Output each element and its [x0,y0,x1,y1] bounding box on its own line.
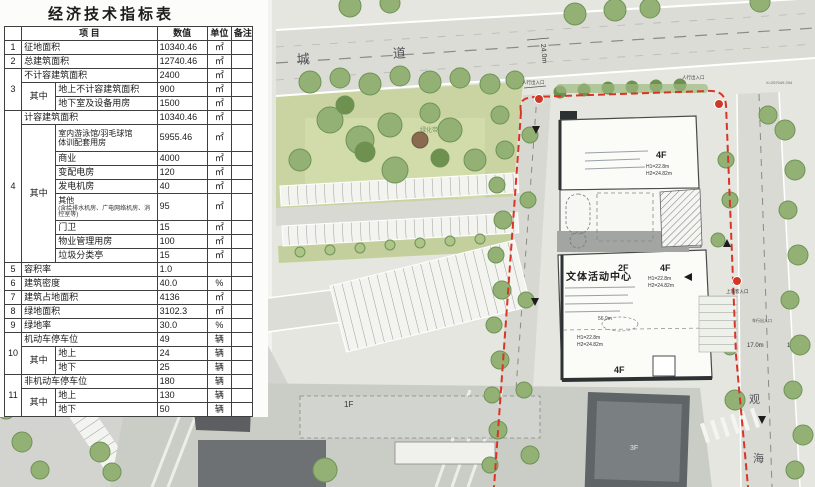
floor-label-1f: 1F [344,400,353,409]
building-name-label: 文体活动中心 [566,270,632,283]
cell-label: 垃圾分类亭 [56,249,157,263]
cell-header-value: 数值 [157,27,207,41]
cell-remark [231,166,252,180]
cell-label: 绿地面积 [22,305,158,319]
cell-unit: ㎡ [207,97,231,111]
cell-label: 建筑占地面积 [22,291,158,305]
cell-label: 其他 (含给排水机房、广电网络机房、消控室等) [56,194,157,221]
cell-value: 100 [157,235,207,249]
cell-no: 6 [5,277,22,291]
cell-unit: ㎡ [207,55,231,69]
cell-value: 4000 [157,152,207,166]
indicator-sheet: 经济技术指标表 项 目 数值 单位 备注 1 征地面积 10340.46 ㎡ 2… [0,0,268,417]
cell-unit: 辆 [207,375,231,389]
cell-remark [231,97,252,111]
cell-unit: ㎡ [207,125,231,152]
cell-unit: ㎡ [207,152,231,166]
cell-value: 900 [157,83,207,97]
cell-remark [231,403,252,417]
cell-unit: ㎡ [207,111,231,125]
cell-label: 不计容建筑面积 [22,69,158,83]
dim-17m-label: 17.0m [747,343,764,349]
cell-unit: ㎡ [207,41,231,55]
cell-label-note: (含给排水机房、广电网络机房、消控室等) [58,206,154,218]
cell-label: 地下室及设备用房 [56,97,157,111]
ped-entrance-label-1: 人行出入口 [522,79,545,86]
cell-label: 地上不计容建筑面积 [56,83,157,97]
cell-unit: 辆 [207,347,231,361]
cell-unit: % [207,319,231,333]
cell-unit: ㎡ [207,194,231,221]
cell-no: 9 [5,319,22,333]
cell-remark [231,263,252,277]
cell-remark [231,291,252,305]
cell-label: 地下 [56,361,157,375]
site-plan-page: { "table": { "title": "经济技术指标表", "header… [0,0,815,487]
cell-value: 15 [157,221,207,235]
cell-qizhong: 其中 [22,83,56,111]
cell-value: 180 [157,375,207,389]
upper-h1: H1=22.8m [646,164,669,170]
cell-label: 商业 [56,152,157,166]
upper-h2: H2=24.82m [646,171,672,177]
cell-label: 计容建筑面积 [22,111,158,125]
cell-unit: ㎡ [207,180,231,194]
cell-unit: ㎡ [207,291,231,305]
cell-unit: ㎡ [207,83,231,97]
cell-no: 8 [5,305,22,319]
cell-value: 130 [157,389,207,403]
cell-remark [231,389,252,403]
cell-value: 1500 [157,97,207,111]
cell-unit: ㎡ [207,166,231,180]
indicator-table: 项 目 数值 单位 备注 1 征地面积 10340.46 ㎡ 2 总建筑面积 1… [4,26,253,417]
cell-remark [231,305,252,319]
cell-value: 4136 [157,291,207,305]
cell-no: 11 [5,375,22,417]
cell-remark [231,41,252,55]
cell-remark [231,277,252,291]
cell-unit: % [207,277,231,291]
right-h2: H2=24.82m [648,283,674,289]
cell-remark [231,125,252,152]
cell-header-remark: 备注 [231,27,252,41]
cell-label: 非机动车停车位 [22,375,158,389]
top-road-name-char-a: 城 [296,51,310,67]
cell-unit: ㎡ [207,235,231,249]
cell-no: 5 [5,263,22,277]
cell-value: 3102.3 [157,305,207,319]
cell-qizhong: 其中 [22,347,56,375]
upper-4f-label: 4F [656,150,667,160]
cell-label: 征地面积 [22,41,158,55]
cell-remark [231,83,252,97]
top-road-name-char-b: 道 [392,45,406,61]
cell-remark [231,69,252,83]
cell-unit: 辆 [207,333,231,347]
cell-value: 120 [157,166,207,180]
cell-remark [231,361,252,375]
cell-remark [231,55,252,69]
cell-value: 49 [157,333,207,347]
cell-remark [231,333,252,347]
cell-no [5,27,22,41]
ped-entrance-label-2: 人行出入口 [682,74,705,81]
cell-value: 12740.46 [157,55,207,69]
cell-remark [231,347,252,361]
cell-no: 1 [5,41,22,55]
coordinate-label: X=257049.204 [766,80,793,85]
lower-h1: H1=22.8m [577,335,600,341]
cell-value: 40 [157,180,207,194]
bottom-4f-label: 4F [614,365,625,375]
cell-value: 1.0 [157,263,207,277]
right-road-name-char-b: 海 [753,451,764,465]
cell-qizhong: 其中 [22,125,56,263]
cell-label: 地下 [56,403,157,417]
cell-no: 10 [5,333,22,375]
cell-unit: ㎡ [207,305,231,319]
cell-label: 总建筑面积 [22,55,158,69]
cell-label: 机动车停车位 [22,333,158,347]
lower-h2: H2=24.82m [577,342,603,348]
cell-value: 25 [157,361,207,375]
cell-no: 2 [5,55,22,69]
cell-no: 7 [5,291,22,305]
cell-unit: ㎡ [207,69,231,83]
cell-label: 变配电房 [56,166,157,180]
cell-value: 15 [157,249,207,263]
cell-no: 3 [5,69,22,111]
cell-label-line2: 体训配套用房 [58,138,154,147]
cell-remark [231,152,252,166]
dropoff-entrance-label: 上落客入口 [726,288,749,295]
cell-value: 10340.46 [157,41,207,55]
right-4f-label: 4F [660,263,671,273]
cell-remark [231,180,252,194]
dim-56-9-label: 56.9m [598,316,612,322]
cell-label: 地上 [56,389,157,403]
cell-unit: 辆 [207,389,231,403]
cell-value: 95 [157,194,207,221]
cell-value: 2400 [157,69,207,83]
right-h1: H1=22.8m [648,276,671,282]
cell-remark [231,249,252,263]
floor-label-3f: 3F [630,445,638,452]
cell-unit: ㎡ [207,221,231,235]
cell-label: 门卫 [56,221,157,235]
cell-value: 24 [157,347,207,361]
cell-value: 30.0 [157,319,207,333]
cell-unit: 辆 [207,361,231,375]
cell-no: 4 [5,111,22,263]
cell-qizhong: 其中 [22,389,56,417]
cell-label: 物业管理用房 [56,235,157,249]
cell-label: 室内游泳馆/羽毛球馆 体训配套用房 [56,125,157,152]
cell-label: 建筑密度 [22,277,158,291]
cell-value: 50 [157,403,207,417]
cell-value: 10340.46 [157,111,207,125]
cell-unit: 辆 [207,403,231,417]
cell-remark [231,194,252,221]
cell-unit: ㎡ [207,249,231,263]
cell-remark [231,111,252,125]
cell-value: 40.0 [157,277,207,291]
cell-remark [231,235,252,249]
cell-value: 5955.46 [157,125,207,152]
cell-remark [231,319,252,333]
cell-label: 发电机房 [56,180,157,194]
cell-label-line1: 其他 [58,196,154,205]
cell-remark [231,221,252,235]
table-title: 经济技术指标表 [0,3,268,24]
right-road-name-char-a: 观 [749,393,760,406]
cell-label-line1: 室内游泳馆/羽毛球馆 [58,129,154,138]
cell-unit [207,263,231,277]
cell-remark [231,375,252,389]
green-belt-label: 绿化带 [420,126,438,134]
cell-header-item: 项 目 [22,27,158,41]
cell-label: 地上 [56,347,157,361]
cell-label: 绿地率 [22,319,158,333]
vehicle-entrance-label: 车行出入口 [752,317,772,323]
cell-label: 容积率 [22,263,158,277]
cell-header-unit: 单位 [207,27,231,41]
